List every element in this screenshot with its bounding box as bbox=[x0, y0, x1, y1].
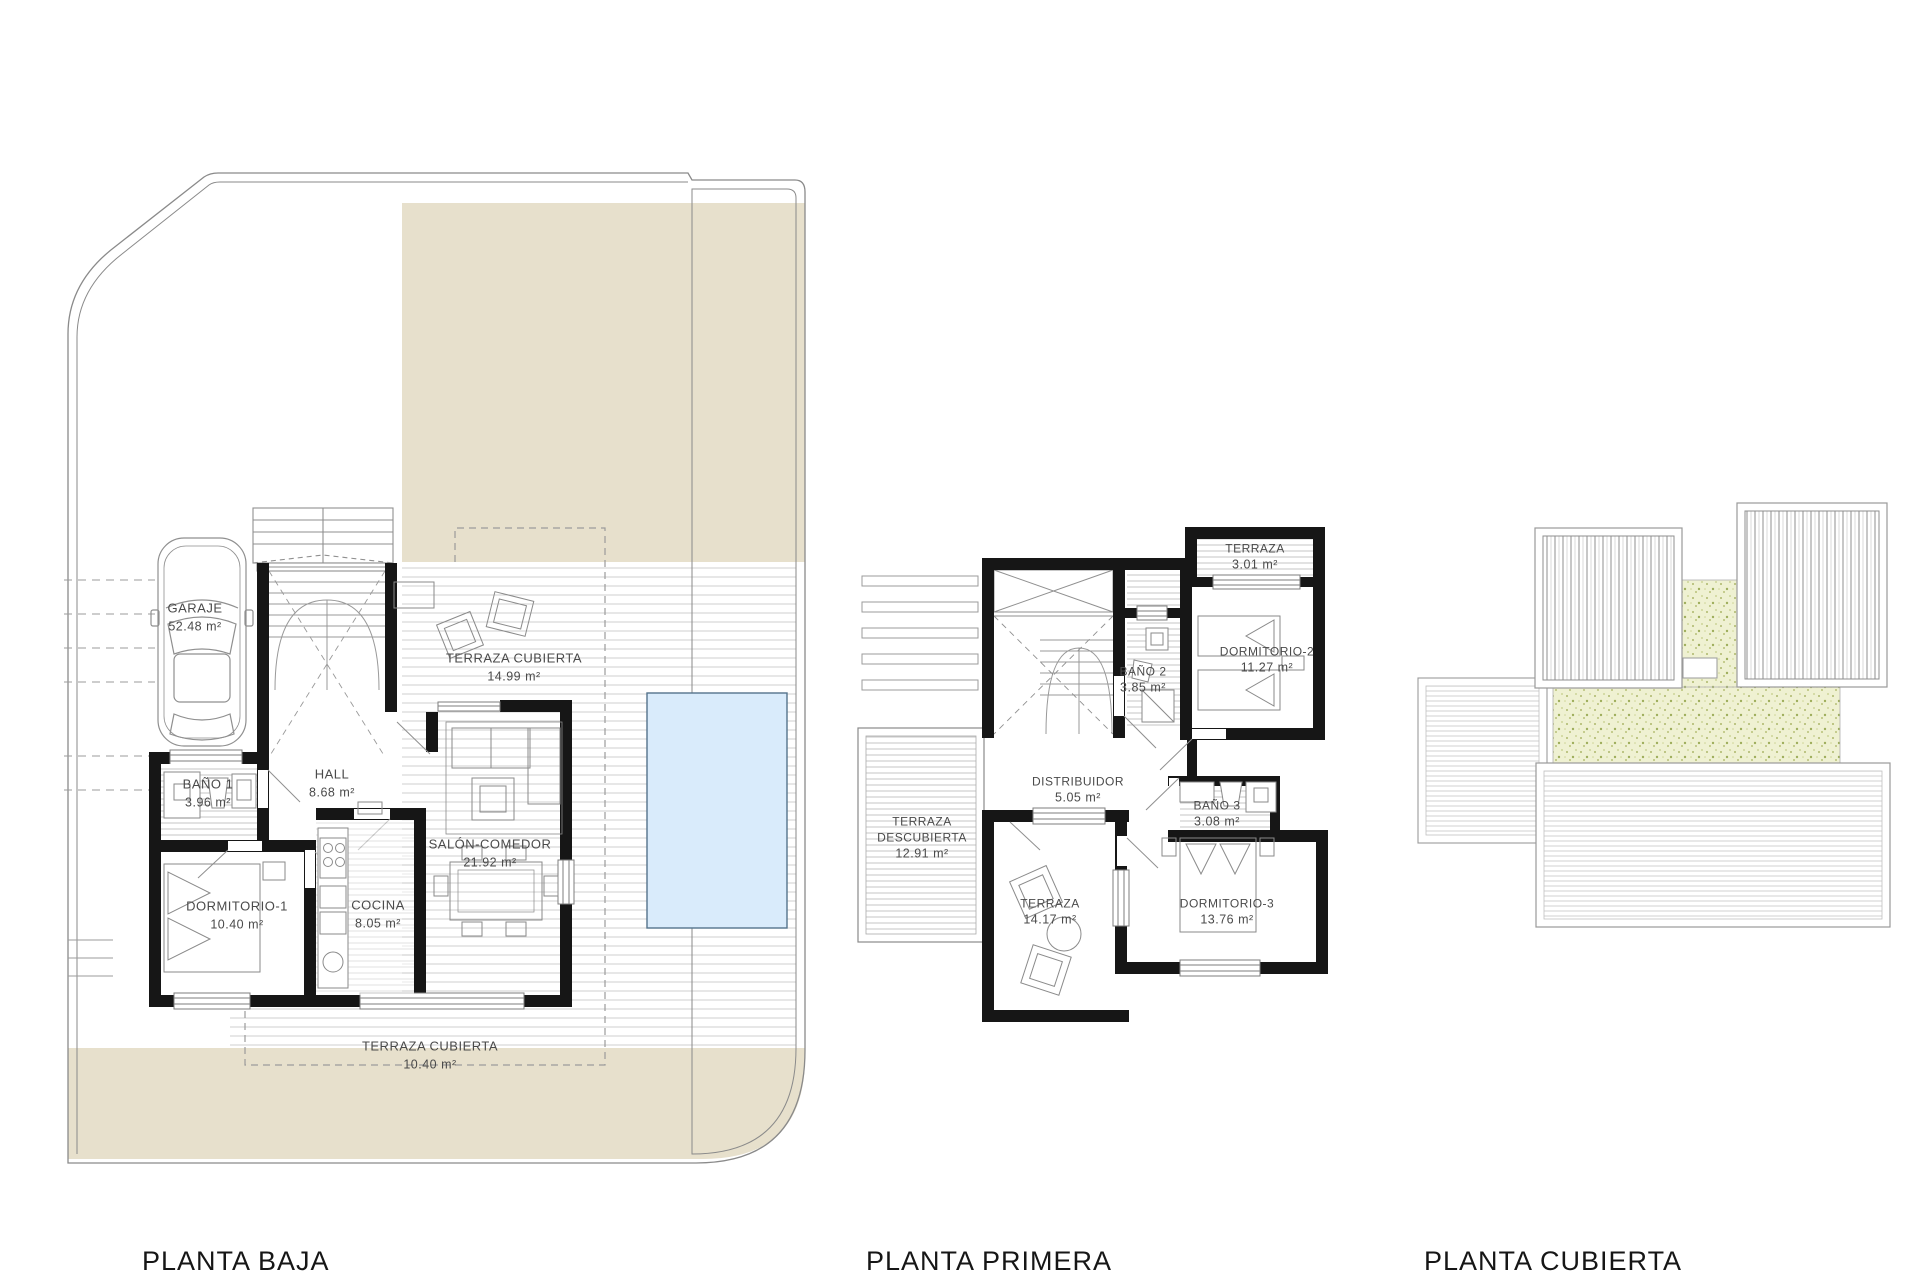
dorm3-window bbox=[1180, 960, 1260, 976]
room-label-terraza-inf: TERRAZA 14.17 m² bbox=[1020, 895, 1080, 928]
room-area: 13.76 m² bbox=[1200, 913, 1253, 927]
roof-pergola-left bbox=[1535, 528, 1682, 688]
car-top-view bbox=[151, 538, 253, 746]
room-name: TERRAZA CUBIERTA bbox=[446, 650, 582, 665]
room-name: HALL bbox=[315, 766, 350, 781]
room-area: 8.05 m² bbox=[355, 916, 401, 930]
room-name: BAÑO 1 bbox=[183, 776, 234, 791]
room-label-garaje: GARAJE 52.48 m² bbox=[167, 599, 222, 634]
room-label-dormitorio1: DORMITORIO-1 10.40 m² bbox=[186, 897, 288, 932]
dorm1-window bbox=[174, 993, 250, 1009]
room-name: TERRAZA bbox=[1225, 541, 1285, 555]
room-label-terraza-descubierta: TERRAZA DESCUBIERTA 12.91 m² bbox=[877, 813, 967, 862]
terraza-sup-window bbox=[1213, 575, 1300, 589]
room-name: SALÓN-COMEDOR bbox=[429, 836, 552, 851]
exterior-steps bbox=[68, 940, 113, 976]
room-area: 21.92 m² bbox=[463, 855, 516, 869]
room-area: 3.85 m² bbox=[1120, 681, 1166, 695]
terraza-inf-furniture bbox=[1010, 866, 1081, 996]
room-label-terraza-sup: TERRAZA 3.01 m² bbox=[1225, 540, 1285, 573]
terraza-dorm3-window bbox=[1113, 870, 1129, 926]
staircase bbox=[269, 571, 385, 757]
salon-glass-north bbox=[438, 702, 500, 711]
room-name: DISTRIBUIDOR bbox=[1032, 774, 1124, 788]
roof-slab-bottom bbox=[1536, 763, 1890, 927]
swimming-pool bbox=[647, 693, 787, 928]
room-area: 11.27 m² bbox=[1241, 661, 1293, 675]
room-label-distribuidor: DISTRIBUIDOR 5.05 m² bbox=[1032, 773, 1124, 806]
room-label-dormitorio2: DORMITORIO-2 11.27 m² bbox=[1220, 643, 1314, 676]
stair-void bbox=[994, 570, 1113, 734]
room-label-hall: HALL 8.68 m² bbox=[309, 765, 355, 800]
room-area: 3.96 m² bbox=[185, 795, 231, 809]
room-label-cocina: COCINA 8.05 m² bbox=[351, 896, 405, 931]
room-name: TERRAZA CUBIERTA bbox=[362, 1038, 498, 1053]
room-label-salon-comedor: SALÓN-COMEDOR 21.92 m² bbox=[429, 835, 552, 870]
room-area: 14.17 m² bbox=[1023, 913, 1076, 927]
plot-surfaces bbox=[68, 203, 805, 1159]
room-area: 5.05 m² bbox=[1055, 791, 1101, 805]
room-label-dormitorio3: DORMITORIO-3 13.76 m² bbox=[1180, 895, 1274, 928]
room-name: BAÑO 3 bbox=[1193, 798, 1240, 812]
plot-beige-upper bbox=[402, 203, 805, 562]
room-area: 3.01 m² bbox=[1232, 558, 1278, 572]
room-name: DORMITORIO-3 bbox=[1180, 896, 1274, 910]
driveway-markings bbox=[64, 580, 155, 790]
bano2-window bbox=[1137, 606, 1167, 620]
room-name: GARAJE bbox=[167, 600, 222, 615]
plan-ground-floor bbox=[58, 162, 818, 1172]
terraza-inf-slider bbox=[1033, 808, 1105, 824]
room-area: 8.68 m² bbox=[309, 785, 355, 799]
room-area: 3.08 m² bbox=[1194, 815, 1240, 829]
room-name: DORMITORIO-2 bbox=[1220, 644, 1314, 658]
salon-window-east bbox=[558, 860, 574, 904]
room-name: BAÑO 2 bbox=[1119, 664, 1166, 678]
room-area: 10.40 m² bbox=[403, 1057, 456, 1071]
room-area: 52.48 m² bbox=[168, 619, 221, 633]
room-area: 12.91 m² bbox=[895, 847, 948, 861]
floorplan-sheet: { "sheet": { "type": "architectural floo… bbox=[0, 0, 1920, 1280]
room-label-bano2: BAÑO 2 3.85 m² bbox=[1119, 663, 1166, 696]
caption-planta-baja: PLANTA BAJA bbox=[142, 1246, 330, 1277]
room-name: DORMITORIO-1 bbox=[186, 898, 288, 913]
room-label-bano3: BAÑO 3 3.08 m² bbox=[1193, 797, 1240, 830]
roof-pergola-right bbox=[1737, 503, 1887, 687]
room-area: 10.40 m² bbox=[210, 917, 263, 931]
louver-bands bbox=[862, 576, 978, 690]
bath1-window bbox=[170, 750, 242, 766]
room-area: 14.99 m² bbox=[487, 669, 540, 683]
room-label-terraza-cubierta-1: TERRAZA CUBIERTA 14.99 m² bbox=[446, 649, 582, 684]
room-name: DESCUBIERTA bbox=[877, 831, 967, 845]
entrance-porch bbox=[253, 508, 393, 571]
caption-planta-primera: PLANTA PRIMERA bbox=[866, 1246, 1112, 1277]
room-label-bano1: BAÑO 1 3.96 m² bbox=[183, 775, 234, 810]
roof-skylight bbox=[1683, 658, 1717, 678]
salon-slider-south bbox=[360, 993, 524, 1009]
room-name: TERRAZA bbox=[1020, 896, 1080, 910]
caption-planta-cubierta: PLANTA CUBIERTA bbox=[1424, 1246, 1682, 1277]
plan-roof bbox=[1410, 440, 1900, 1110]
roof-terrace-left bbox=[1418, 678, 1547, 843]
room-label-terraza-cubierta-2: TERRAZA CUBIERTA 10.40 m² bbox=[362, 1037, 498, 1072]
room-name: COCINA bbox=[351, 897, 405, 912]
room-name: TERRAZA bbox=[892, 814, 952, 828]
